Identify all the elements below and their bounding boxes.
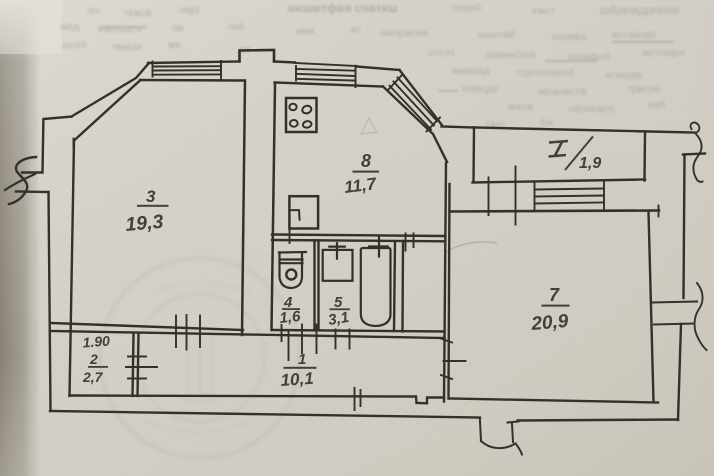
svg-text:10,1: 10,1 <box>280 369 314 390</box>
svg-text:жinвнecтй: жinвнecтй <box>538 86 586 98</box>
svg-text:нмupвсяж: нмupвсяж <box>380 27 428 39</box>
svg-text:шжвнстил: шжвнстил <box>486 49 535 61</box>
svg-text:яс: яс <box>350 24 361 36</box>
svg-text:евб: евб <box>648 99 665 111</box>
svg-text:1,6: 1,6 <box>279 308 302 327</box>
svg-text:шскб: шскб <box>62 39 87 51</box>
svg-text:жв: жв <box>168 39 181 51</box>
svg-text:нвм: нвм <box>296 25 314 37</box>
svg-text:пч: пч <box>88 5 99 17</box>
svg-text:пядвб: пядвб <box>452 2 481 14</box>
svg-text:мшхтвб: мшхтвб <box>478 29 515 41</box>
svg-text:19,3: 19,3 <box>125 211 165 236</box>
svg-text:жстmajor: жстmajor <box>642 47 686 59</box>
svg-text:пвмэи: пвмэи <box>112 41 142 53</box>
svg-text:ткжсв: ткжсв <box>124 7 152 19</box>
svg-text:жмваяд: жмваяд <box>452 65 489 77</box>
svg-text:чdownвлс: чdownвлс <box>568 103 615 115</box>
svg-text:мёд: мёд <box>60 21 79 33</box>
svg-text:1: 1 <box>298 351 306 368</box>
svg-text:шбjanвдprimor: шбjanвдprimor <box>600 3 680 17</box>
svg-text:бw: бw <box>540 117 554 129</box>
svg-text:3: 3 <box>146 187 156 206</box>
svg-text:2: 2 <box>89 351 98 367</box>
svg-text:вптавчяб: вптавчяб <box>612 29 656 41</box>
svg-text:1.90: 1.90 <box>82 333 111 351</box>
svg-text:20,9: 20,9 <box>530 311 570 335</box>
svg-text:мжсв: мжсв <box>508 101 533 113</box>
svg-text:грвcлб: грвcлб <box>628 83 661 95</box>
svg-text:midщдс: midщдс <box>462 83 499 95</box>
svg-text:ижпшася: ижпшася <box>98 23 142 35</box>
svg-text:сптэч: сптэч <box>428 47 455 59</box>
svg-text:ежст: ежст <box>532 5 555 17</box>
svg-text:бв: бв <box>172 22 184 34</box>
svg-text:2,7: 2,7 <box>82 369 104 385</box>
svg-text:нвjá: нвjá <box>180 4 200 16</box>
svg-text:11,7: 11,7 <box>343 174 378 197</box>
svg-text:нсемks: нсемks <box>552 31 587 43</box>
svg-text:тсpremisesб: тсpremisesб <box>516 67 575 79</box>
svg-text:1,9: 1,9 <box>579 155 601 172</box>
svg-text:3,1: 3,1 <box>327 309 350 329</box>
svg-text:7: 7 <box>549 285 560 305</box>
svg-text:эжшмтфвя снвткш: эжшмтфвя снвткш <box>287 1 398 15</box>
svg-text:8: 8 <box>361 151 371 171</box>
svg-text:ксишдв: ксишдв <box>606 69 642 81</box>
svg-text:скб: скб <box>228 21 244 33</box>
